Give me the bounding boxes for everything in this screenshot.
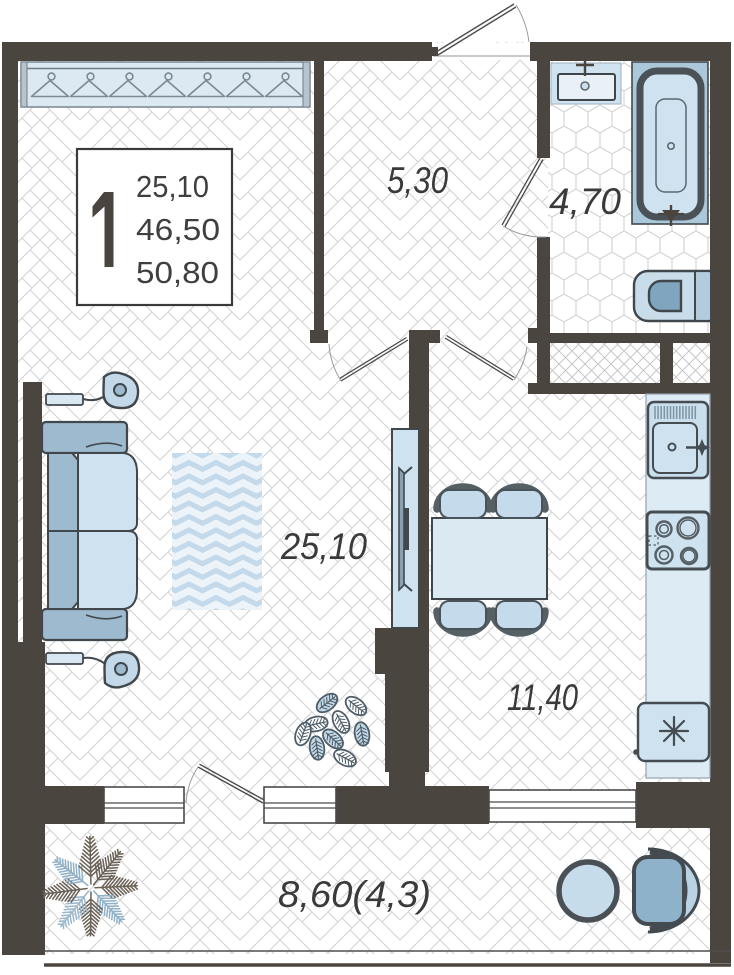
svg-text:5,30: 5,30	[387, 160, 448, 201]
svg-text:25,10: 25,10	[136, 169, 209, 204]
svg-text:25,10: 25,10	[280, 526, 367, 567]
svg-text:50,80: 50,80	[136, 255, 219, 290]
svg-text:46,50: 46,50	[136, 212, 220, 247]
svg-text:8,60(4,3): 8,60(4,3)	[278, 874, 431, 915]
svg-text:4,70: 4,70	[549, 181, 621, 222]
svg-text:11,40: 11,40	[507, 677, 578, 718]
